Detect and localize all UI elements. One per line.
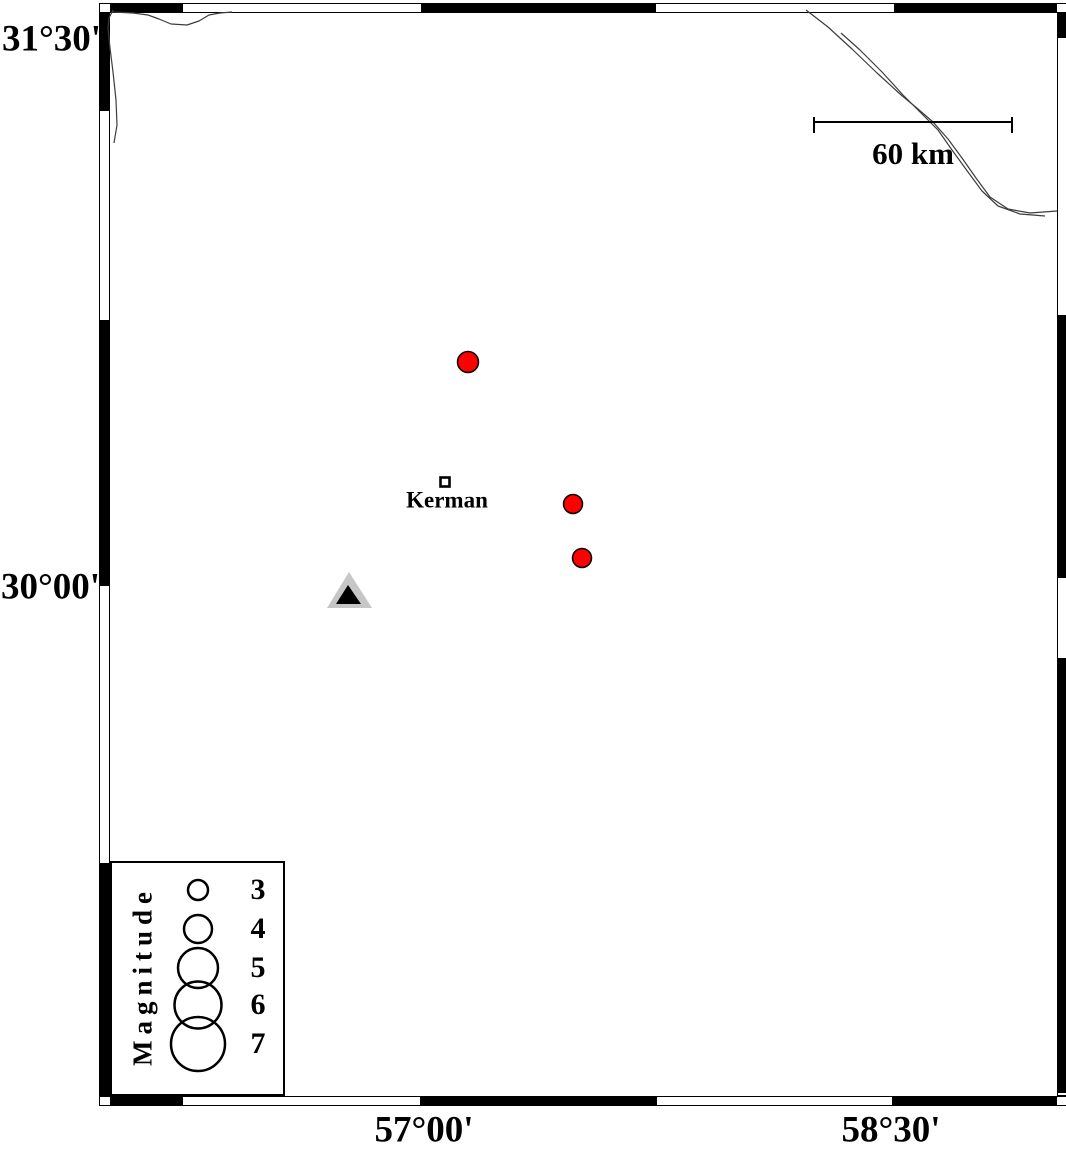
frame-segment <box>100 14 109 111</box>
frame-segment <box>100 863 109 1095</box>
frame-segment <box>110 1097 183 1105</box>
frame-band-right <box>1057 13 1066 1096</box>
city-name-label: Kerman <box>406 489 488 512</box>
longitude-label: 58°30' <box>841 1112 940 1149</box>
latitude-label: 30°00' <box>1 569 100 606</box>
legend-title: Magnitude <box>130 886 157 1066</box>
frame-segment <box>892 1097 1057 1105</box>
frame-band-bottom <box>99 1096 1066 1106</box>
fault-line <box>806 10 1057 213</box>
earthquake-marker <box>564 495 583 514</box>
scale-bar-label: 60 km <box>872 138 954 169</box>
scale-bar <box>814 117 1012 133</box>
frame-band-left <box>99 13 110 1096</box>
frame-segment <box>1058 14 1066 38</box>
legend-magnitude-label: 3 <box>251 875 266 905</box>
fault-line <box>112 12 232 25</box>
city-marker <box>441 478 450 487</box>
frame-segment <box>110 4 183 12</box>
frame-segment <box>420 1097 657 1105</box>
longitude-label: 57°00' <box>374 1112 473 1149</box>
earthquake-marker <box>573 549 592 568</box>
frame-segment <box>1058 315 1066 578</box>
frame-band-top <box>99 3 1066 13</box>
station-triangle-outer <box>327 572 372 608</box>
legend-magnitude-label: 4 <box>251 914 266 944</box>
station-triangle-inner <box>336 585 361 604</box>
legend-magnitude-label: 5 <box>251 953 266 983</box>
seismicity-map-page: { "axis": { "left_labels": [ {"text": "3… <box>0 0 1066 1146</box>
legend-magnitude-label: 7 <box>251 1029 266 1059</box>
latitude-label: 31°30' <box>2 21 101 58</box>
frame-segment <box>1058 658 1066 1093</box>
frame-segment <box>100 320 109 586</box>
frame-segment <box>421 4 656 12</box>
legend-magnitude-label: 6 <box>251 990 266 1020</box>
fault-line <box>841 33 1045 216</box>
frame-segment <box>894 4 1057 12</box>
earthquake-marker <box>458 352 479 373</box>
